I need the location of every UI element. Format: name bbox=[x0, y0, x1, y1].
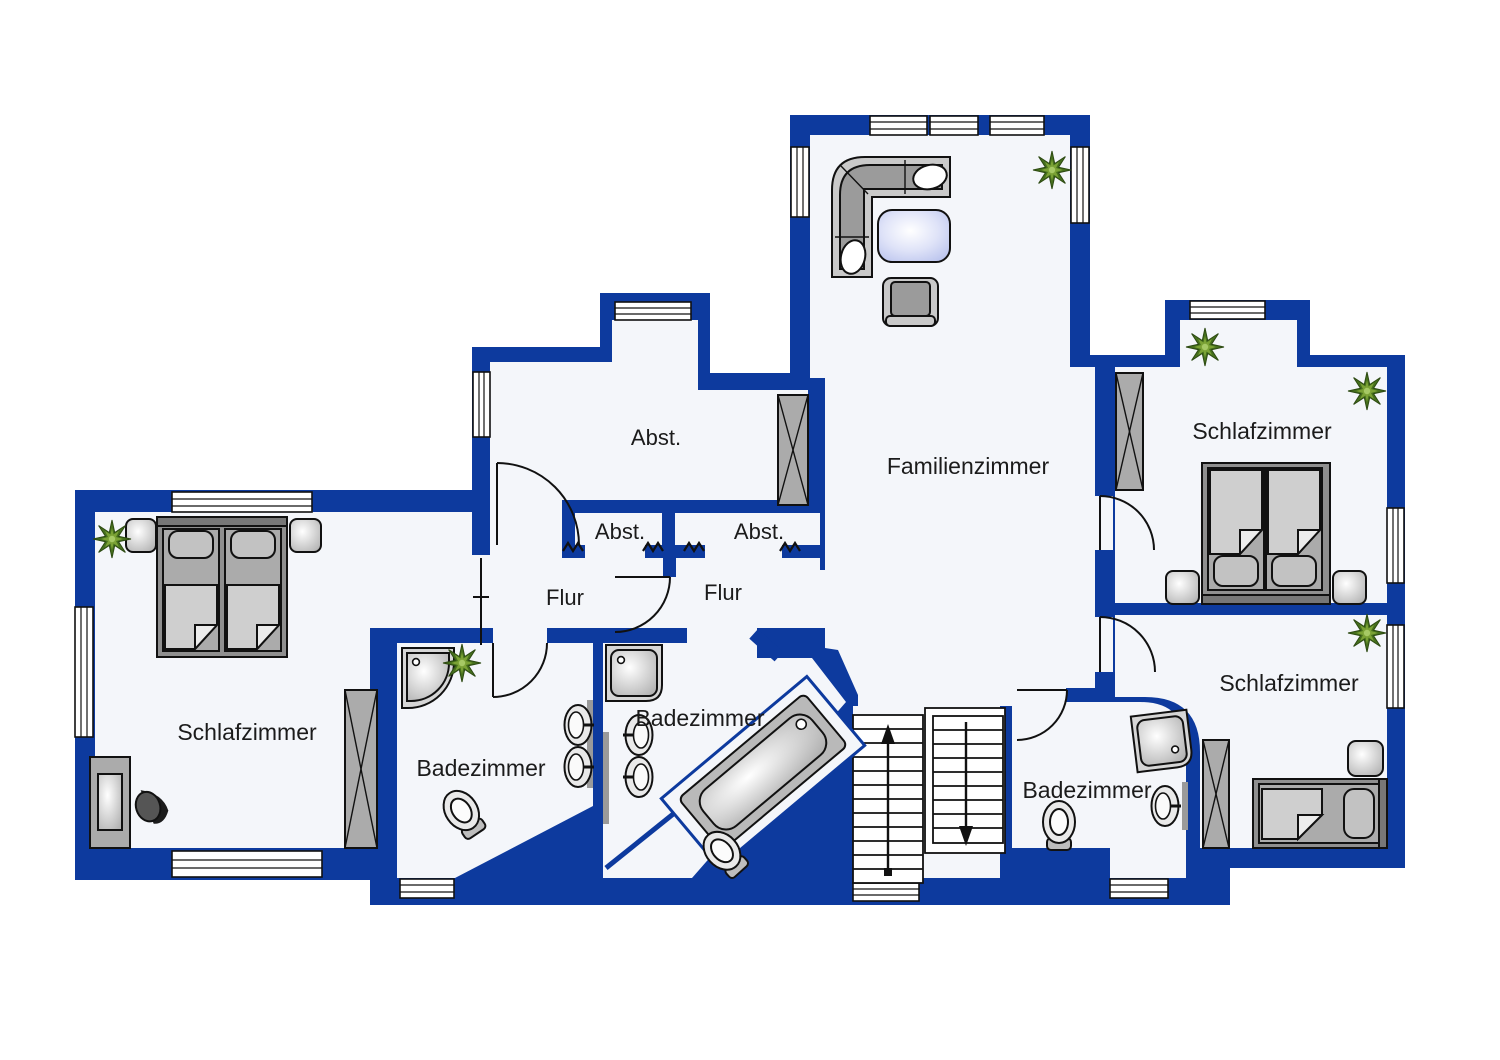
nightstand bbox=[1166, 571, 1199, 604]
window-icon bbox=[930, 116, 978, 135]
window-icon bbox=[990, 116, 1044, 135]
label-familienzimmer: Familienzimmer bbox=[887, 453, 1050, 479]
plant-icon bbox=[93, 520, 131, 558]
window-icon bbox=[1387, 508, 1404, 583]
wardrobe bbox=[345, 690, 377, 848]
label-flur-left: Flur bbox=[546, 585, 584, 610]
label-flur-right: Flur bbox=[704, 580, 742, 605]
label-badezimmer-center: Badezimmer bbox=[635, 705, 764, 731]
window-icon bbox=[870, 116, 927, 135]
desk bbox=[90, 757, 130, 848]
nightstand bbox=[1333, 571, 1366, 604]
label-badezimmer-right: Badezimmer bbox=[1022, 777, 1151, 803]
wardrobe bbox=[778, 395, 808, 505]
label-badezimmer-left: Badezimmer bbox=[416, 755, 545, 781]
nightstand bbox=[1348, 741, 1383, 776]
toilet bbox=[1043, 801, 1075, 850]
floor-flur-right bbox=[676, 558, 820, 628]
washbasin-counter bbox=[1182, 782, 1188, 830]
window-icon bbox=[1190, 301, 1265, 319]
window-icon bbox=[853, 883, 919, 901]
floor-plan-drawing: Familienzimmer Schlafzimmer Schlafzimmer… bbox=[0, 0, 1500, 1060]
shower bbox=[606, 645, 662, 701]
double-bed bbox=[1202, 463, 1330, 604]
shower bbox=[1131, 710, 1193, 772]
window-icon bbox=[1110, 879, 1168, 898]
label-schlafzimmer-bottom-right: Schlafzimmer bbox=[1219, 670, 1359, 696]
floor-abst-door-passage bbox=[490, 513, 562, 558]
window-icon bbox=[172, 492, 312, 512]
wardrobe bbox=[1116, 373, 1143, 490]
nightstand bbox=[290, 519, 321, 552]
nightstand bbox=[126, 519, 156, 552]
plant-icon bbox=[443, 644, 481, 682]
plant-icon bbox=[1348, 372, 1386, 410]
coffee-table bbox=[878, 210, 950, 262]
washbasin-counter bbox=[603, 732, 609, 824]
plant-icon bbox=[1348, 614, 1386, 652]
label-abst-large: Abst. bbox=[631, 425, 681, 450]
window-icon bbox=[75, 607, 93, 737]
double-bed bbox=[157, 517, 287, 657]
window-icon bbox=[791, 147, 809, 217]
label-schlafzimmer-top-right: Schlafzimmer bbox=[1192, 418, 1332, 444]
floor-plan-page: Familienzimmer Schlafzimmer Schlafzimmer… bbox=[0, 0, 1500, 1060]
window-icon bbox=[400, 879, 454, 898]
window-icon bbox=[615, 302, 691, 320]
label-schlafzimmer-left: Schlafzimmer bbox=[177, 719, 317, 745]
label-abst-small-left: Abst. bbox=[595, 519, 645, 544]
window-icon bbox=[1387, 625, 1404, 708]
plant-icon bbox=[1186, 328, 1224, 366]
window-icon bbox=[1071, 147, 1089, 223]
label-abst-small-right: Abst. bbox=[734, 519, 784, 544]
wardrobe bbox=[1203, 740, 1229, 848]
armchair bbox=[883, 278, 938, 326]
plant-icon bbox=[1033, 151, 1071, 189]
window-icon bbox=[473, 372, 490, 437]
single-bed bbox=[1253, 779, 1387, 848]
window-icon bbox=[172, 851, 322, 877]
